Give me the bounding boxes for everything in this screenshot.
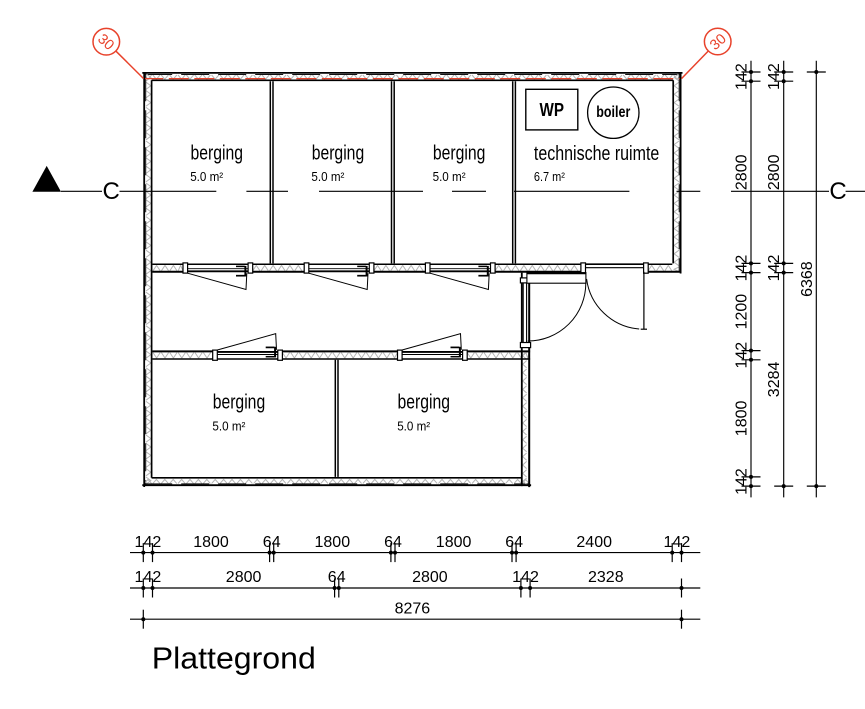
svg-text:8276: 8276 bbox=[395, 600, 431, 617]
svg-text:142: 142 bbox=[512, 569, 539, 586]
svg-text:2800: 2800 bbox=[226, 569, 262, 586]
svg-text:5.0 m²: 5.0 m² bbox=[311, 169, 345, 184]
svg-text:C: C bbox=[829, 178, 846, 205]
svg-text:5.0 m²: 5.0 m² bbox=[190, 169, 224, 184]
svg-text:6.7 m²: 6.7 m² bbox=[534, 169, 566, 184]
svg-text:64: 64 bbox=[384, 534, 402, 551]
svg-text:WP: WP bbox=[540, 100, 565, 120]
svg-text:5.0 m²: 5.0 m² bbox=[433, 169, 467, 184]
svg-text:1800: 1800 bbox=[315, 534, 351, 551]
svg-text:142: 142 bbox=[135, 569, 162, 586]
svg-text:2328: 2328 bbox=[588, 569, 624, 586]
svg-text:142: 142 bbox=[734, 255, 751, 282]
svg-text:6368: 6368 bbox=[799, 261, 816, 297]
svg-text:142: 142 bbox=[734, 342, 751, 369]
svg-text:1800: 1800 bbox=[193, 534, 229, 551]
svg-text:boiler: boiler bbox=[596, 104, 630, 121]
svg-text:2800: 2800 bbox=[766, 154, 783, 190]
svg-text:2800: 2800 bbox=[412, 569, 448, 586]
svg-text:2800: 2800 bbox=[734, 154, 751, 190]
svg-text:berging: berging bbox=[312, 142, 365, 164]
svg-text:142: 142 bbox=[734, 468, 751, 495]
svg-text:142: 142 bbox=[766, 63, 783, 90]
svg-text:berging: berging bbox=[398, 392, 451, 414]
svg-text:5.0 m²: 5.0 m² bbox=[397, 418, 431, 433]
svg-text:142: 142 bbox=[135, 534, 162, 551]
svg-text:64: 64 bbox=[505, 534, 523, 551]
svg-text:Plattegrond: Plattegrond bbox=[152, 641, 316, 676]
svg-text:1200: 1200 bbox=[734, 294, 751, 330]
svg-text:berging: berging bbox=[191, 142, 244, 164]
svg-text:berging: berging bbox=[213, 392, 266, 414]
svg-text:1800: 1800 bbox=[436, 534, 472, 551]
svg-text:berging: berging bbox=[433, 142, 486, 164]
svg-text:142: 142 bbox=[766, 255, 783, 282]
svg-text:142: 142 bbox=[664, 534, 691, 551]
svg-text:3284: 3284 bbox=[766, 362, 783, 398]
svg-text:2400: 2400 bbox=[576, 534, 612, 551]
svg-text:5.0 m²: 5.0 m² bbox=[212, 418, 246, 433]
svg-text:142: 142 bbox=[734, 63, 751, 90]
svg-text:C: C bbox=[103, 178, 120, 205]
svg-text:1800: 1800 bbox=[734, 401, 751, 437]
svg-text:technische ruimte: technische ruimte bbox=[534, 143, 659, 165]
svg-text:64: 64 bbox=[328, 569, 346, 586]
svg-text:64: 64 bbox=[263, 534, 281, 551]
